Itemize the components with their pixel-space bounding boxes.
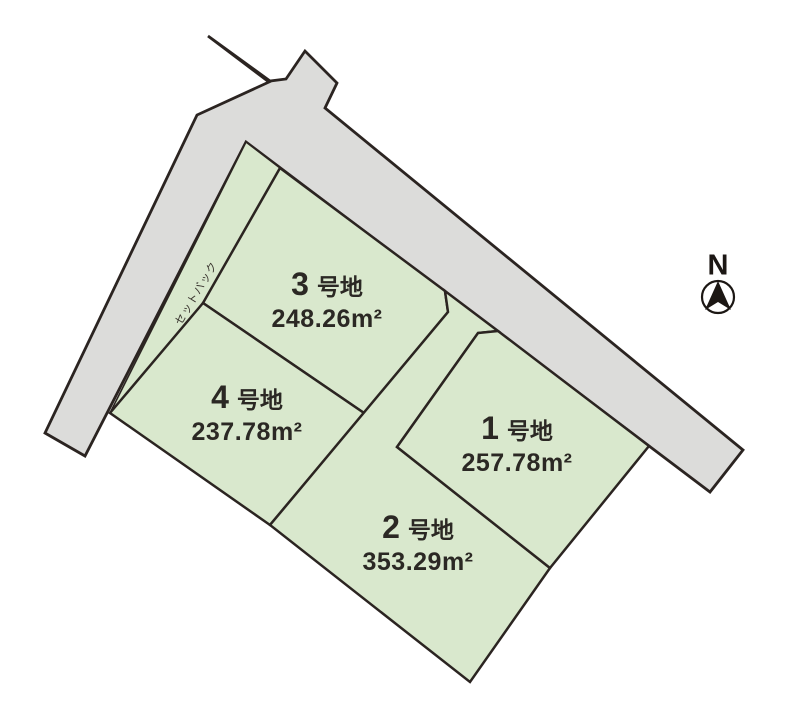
plot-1-number: 1号地 — [461, 412, 572, 444]
north-label: N — [708, 250, 729, 283]
plot-4-area-value: 237.78m² — [191, 420, 302, 445]
site-plan-page: 1号地 257.78m² 2号地 353.29m² 3号地 248.26m² 4… — [0, 0, 799, 708]
plot-3-label: 3号地 248.26m² — [271, 268, 382, 332]
plot-4-number: 4号地 — [191, 381, 302, 413]
plot-4-label: 4号地 237.78m² — [191, 381, 302, 445]
plot-3-number: 3号地 — [271, 268, 382, 300]
plot-2-number: 2号地 — [362, 511, 473, 543]
plot-1-label: 1号地 257.78m² — [461, 412, 572, 476]
plot-2-area-value: 353.29m² — [362, 550, 473, 575]
plot-2-label: 2号地 353.29m² — [362, 511, 473, 575]
plot-1-area-value: 257.78m² — [461, 451, 572, 476]
plot-3-area-value: 248.26m² — [271, 307, 382, 332]
site-plan-drawing — [0, 0, 799, 708]
